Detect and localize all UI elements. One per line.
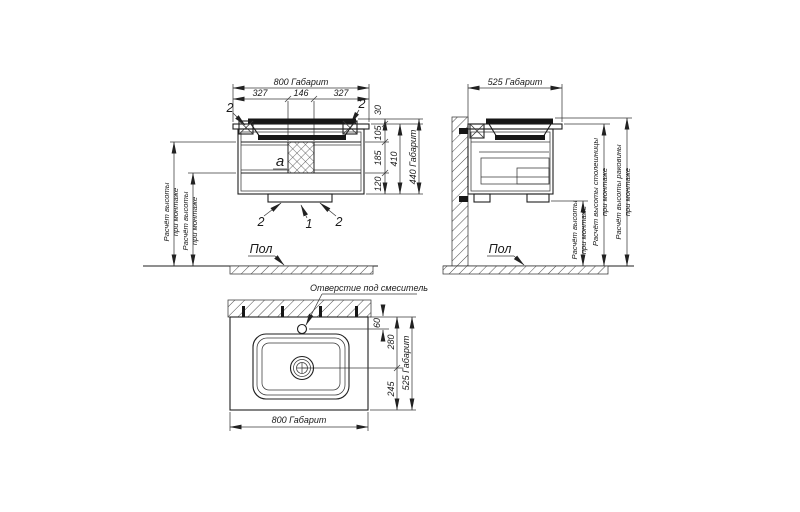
dim-cabinet-height-label: 410 <box>389 151 399 166</box>
faucet-hole <box>298 325 307 334</box>
dim-width-total-label: 800 Габарит <box>274 77 329 87</box>
mount-note-1-line1: Расчёт высоты <box>162 182 171 241</box>
dim-rim-height-label: 30 <box>373 105 383 115</box>
cabinet-foot <box>474 194 490 202</box>
basin-rim-outer <box>253 334 349 399</box>
countertop-note-line1: Расчёт высоты столешницы <box>591 137 600 246</box>
mount-note-line2: при монтаже <box>579 206 588 254</box>
top-view: Отверстие под смеситель 60 280 245 525 Г… <box>228 283 428 431</box>
basin-rim-inner <box>257 338 345 395</box>
label-siphon-area: а <box>276 153 284 170</box>
dim-left-segment-label: 327 <box>252 88 268 98</box>
mount-note-2-line2: при монтаже <box>190 197 199 245</box>
wall-fastener <box>355 306 358 317</box>
floor-slab-hatch <box>230 266 373 274</box>
faucet-hole-note: Отверстие под смеситель <box>310 283 428 293</box>
callout-plinth-left: 2 <box>257 215 265 229</box>
dim-width-total-plan-label: 800 Габарит <box>272 415 327 425</box>
leader-line <box>264 203 281 216</box>
basin-floor-edge <box>262 343 340 390</box>
sink-rim <box>248 119 356 124</box>
technical-drawing-page: 800 Габарит 327 146 327 2 2 <box>0 0 800 512</box>
dim-faucet-offset-label: 60 <box>372 318 382 328</box>
wall-bracket-top <box>470 124 484 138</box>
siphon-area-hatch <box>288 142 314 173</box>
dim-right-segment-label: 327 <box>333 88 349 98</box>
dim-depth-total-label: 525 Габарит <box>488 77 543 87</box>
sink-note-line2: при монтаже <box>623 168 632 216</box>
plinth <box>268 194 332 202</box>
dim-sink-depth-label: 105 <box>373 125 383 141</box>
leader-line <box>514 256 524 265</box>
sink-wall <box>489 124 496 136</box>
dim-height-total-label: 440 Габарит <box>408 129 418 184</box>
mount-note-1-line2: при монтаже <box>171 188 180 236</box>
wall-hatch <box>452 117 468 266</box>
drawer-side-profile <box>479 152 549 184</box>
side-view: 525 Габарит Расчё <box>443 77 634 274</box>
dim-bottom-section-label: 120 <box>373 176 383 191</box>
sink-bottom-side <box>495 135 545 140</box>
dim-drain-to-front-label: 245 <box>386 381 396 398</box>
wall-fastener <box>242 306 245 317</box>
countertop-note-line2: при монтаже <box>600 168 609 216</box>
callout-bracket-right: 2 <box>358 97 366 111</box>
wall-fastener <box>319 306 322 317</box>
wall-anchor-top <box>459 128 468 134</box>
sink-rim-side <box>486 119 553 124</box>
leader-line <box>320 203 336 216</box>
wall-fastener <box>281 306 284 317</box>
callout-plinth-right: 2 <box>335 215 343 229</box>
wall-anchor-bottom <box>459 196 468 202</box>
sink-bottom <box>258 135 346 140</box>
floor-slab-hatch <box>443 266 608 274</box>
mount-note-line1: Расчёт высоты <box>570 200 579 259</box>
front-view: 800 Габарит 327 146 327 2 2 <box>143 77 423 274</box>
mount-note-2-line1: Расчёт высоты <box>181 191 190 250</box>
leader-line <box>275 256 284 265</box>
dim-depth-total-plan-label: 525 Габарит <box>401 335 411 390</box>
cabinet-foot <box>527 194 549 202</box>
wall-hatch-plan <box>228 300 371 317</box>
callout-bracket-left: 2 <box>226 101 234 115</box>
callout-plinth-center: 1 <box>306 217 313 231</box>
vanity-drawing: 800 Габарит 327 146 327 2 2 <box>0 0 800 512</box>
cabinet-inner-wall <box>471 132 550 191</box>
dim-center-segment-label: 146 <box>293 88 308 98</box>
leader-line <box>301 205 307 218</box>
sink-note-line1: Расчёт высоты раковины <box>614 144 623 240</box>
floor-label: Пол <box>489 242 512 256</box>
dim-middle-section-label: 185 <box>373 150 383 166</box>
dim-back-to-drain-label: 280 <box>386 334 396 350</box>
floor-label: Пол <box>250 242 273 256</box>
